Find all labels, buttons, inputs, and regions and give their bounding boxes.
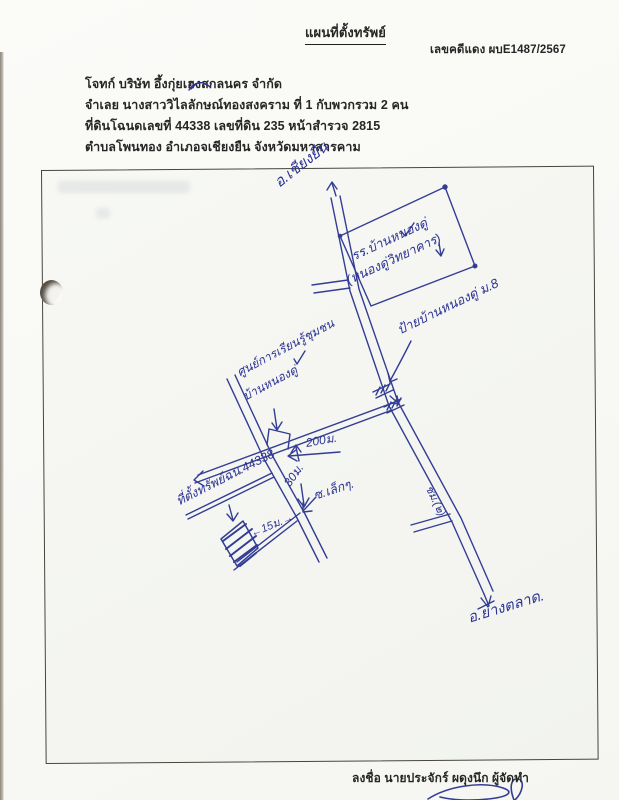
case-number: เลขคดีแดง ผบE1487/2567 bbox=[430, 41, 566, 59]
map-border-frame bbox=[41, 166, 599, 764]
scan-paper-edge bbox=[0, 52, 4, 800]
deed-line: ที่ดินโฉนดเลขที่ 44338 เลขที่ดิน 235 หน้… bbox=[85, 116, 380, 137]
scanned-document-page: แผนที่ตั้งทรัพย์ เลขคดีแดง ผบE1487/2567 … bbox=[0, 0, 619, 800]
page-title: แผนที่ตั้งทรัพย์ bbox=[305, 22, 386, 45]
defendant-line: จำเลย นางสาววิไลลักษณ์ทองสงคราม ที่ 1 กั… bbox=[85, 95, 409, 116]
signer-line: ลงชื่อ นายประจักร์ ผดุงนึก ผู้จัดทำ bbox=[352, 769, 529, 788]
bleed-through-smudge bbox=[58, 181, 190, 193]
punch-hole bbox=[40, 280, 63, 305]
plaintiff-line: โจทก์ บริษัท อึ้งกุ่ยเฮงสกลนคร จำกัด bbox=[85, 74, 282, 95]
bleed-through-smudge bbox=[96, 208, 110, 218]
